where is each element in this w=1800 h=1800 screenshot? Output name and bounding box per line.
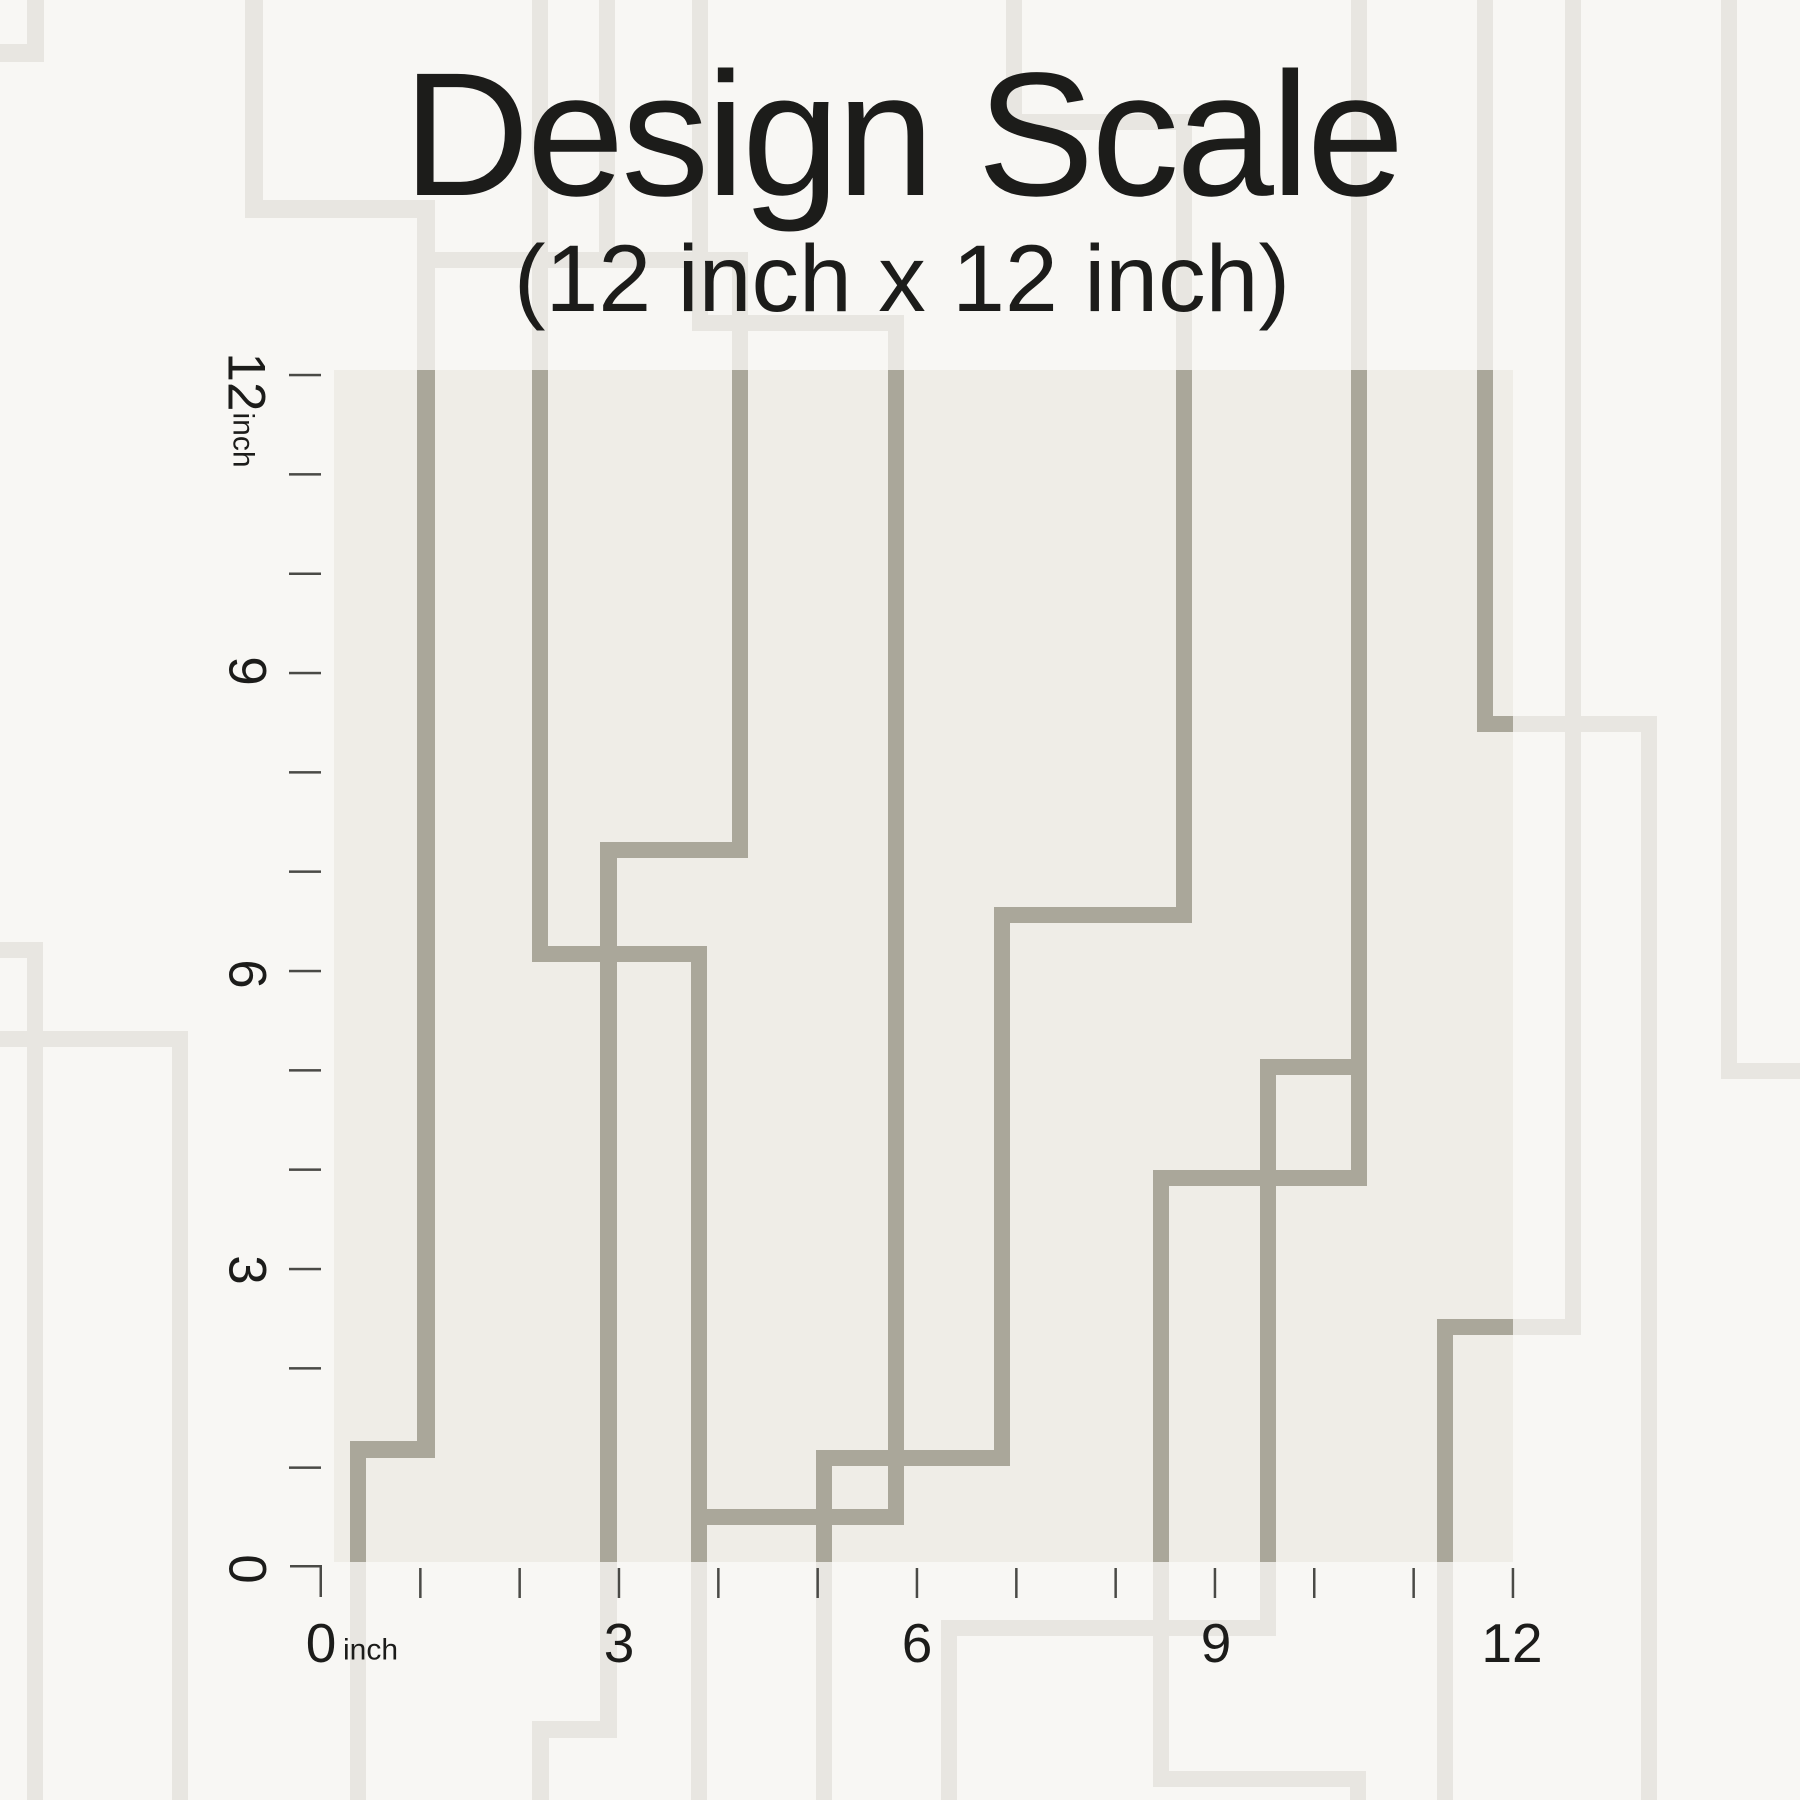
svg-text:9: 9	[1201, 1612, 1232, 1674]
svg-text:3: 3	[218, 1255, 277, 1284]
svg-text:12: 12	[1481, 1612, 1542, 1674]
svg-text:Design Scale: Design Scale	[403, 37, 1402, 233]
svg-text:9: 9	[218, 656, 277, 685]
svg-text:inch: inch	[227, 412, 260, 467]
svg-text:6: 6	[218, 959, 277, 988]
svg-text:0: 0	[306, 1612, 337, 1674]
svg-text:6: 6	[902, 1612, 933, 1674]
svg-text:inch: inch	[343, 1634, 398, 1667]
svg-text:0: 0	[218, 1554, 277, 1583]
svg-text:(12 inch x 12 inch): (12 inch x 12 inch)	[514, 226, 1290, 332]
svg-text:3: 3	[604, 1612, 635, 1674]
svg-text:12: 12	[217, 353, 276, 412]
